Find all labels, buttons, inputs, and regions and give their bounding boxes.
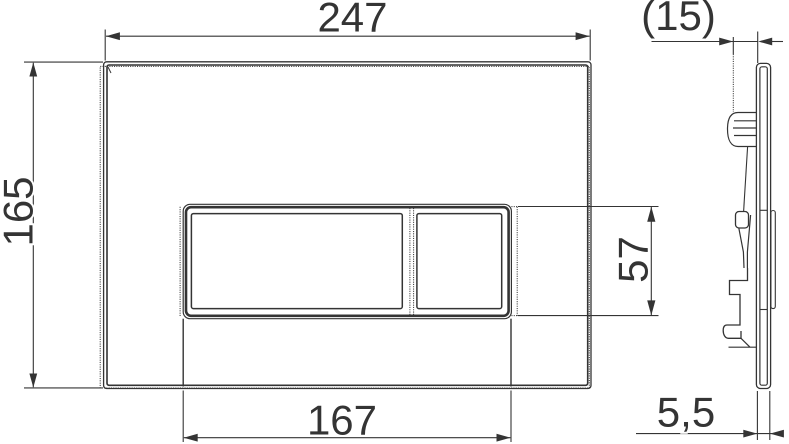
svg-text:247: 247 — [317, 0, 387, 40]
svg-text:57: 57 — [610, 236, 657, 283]
svg-text:(15): (15) — [641, 0, 716, 39]
svg-text:165: 165 — [0, 176, 42, 246]
svg-text:167: 167 — [307, 397, 377, 444]
svg-text:5,5: 5,5 — [657, 388, 715, 435]
